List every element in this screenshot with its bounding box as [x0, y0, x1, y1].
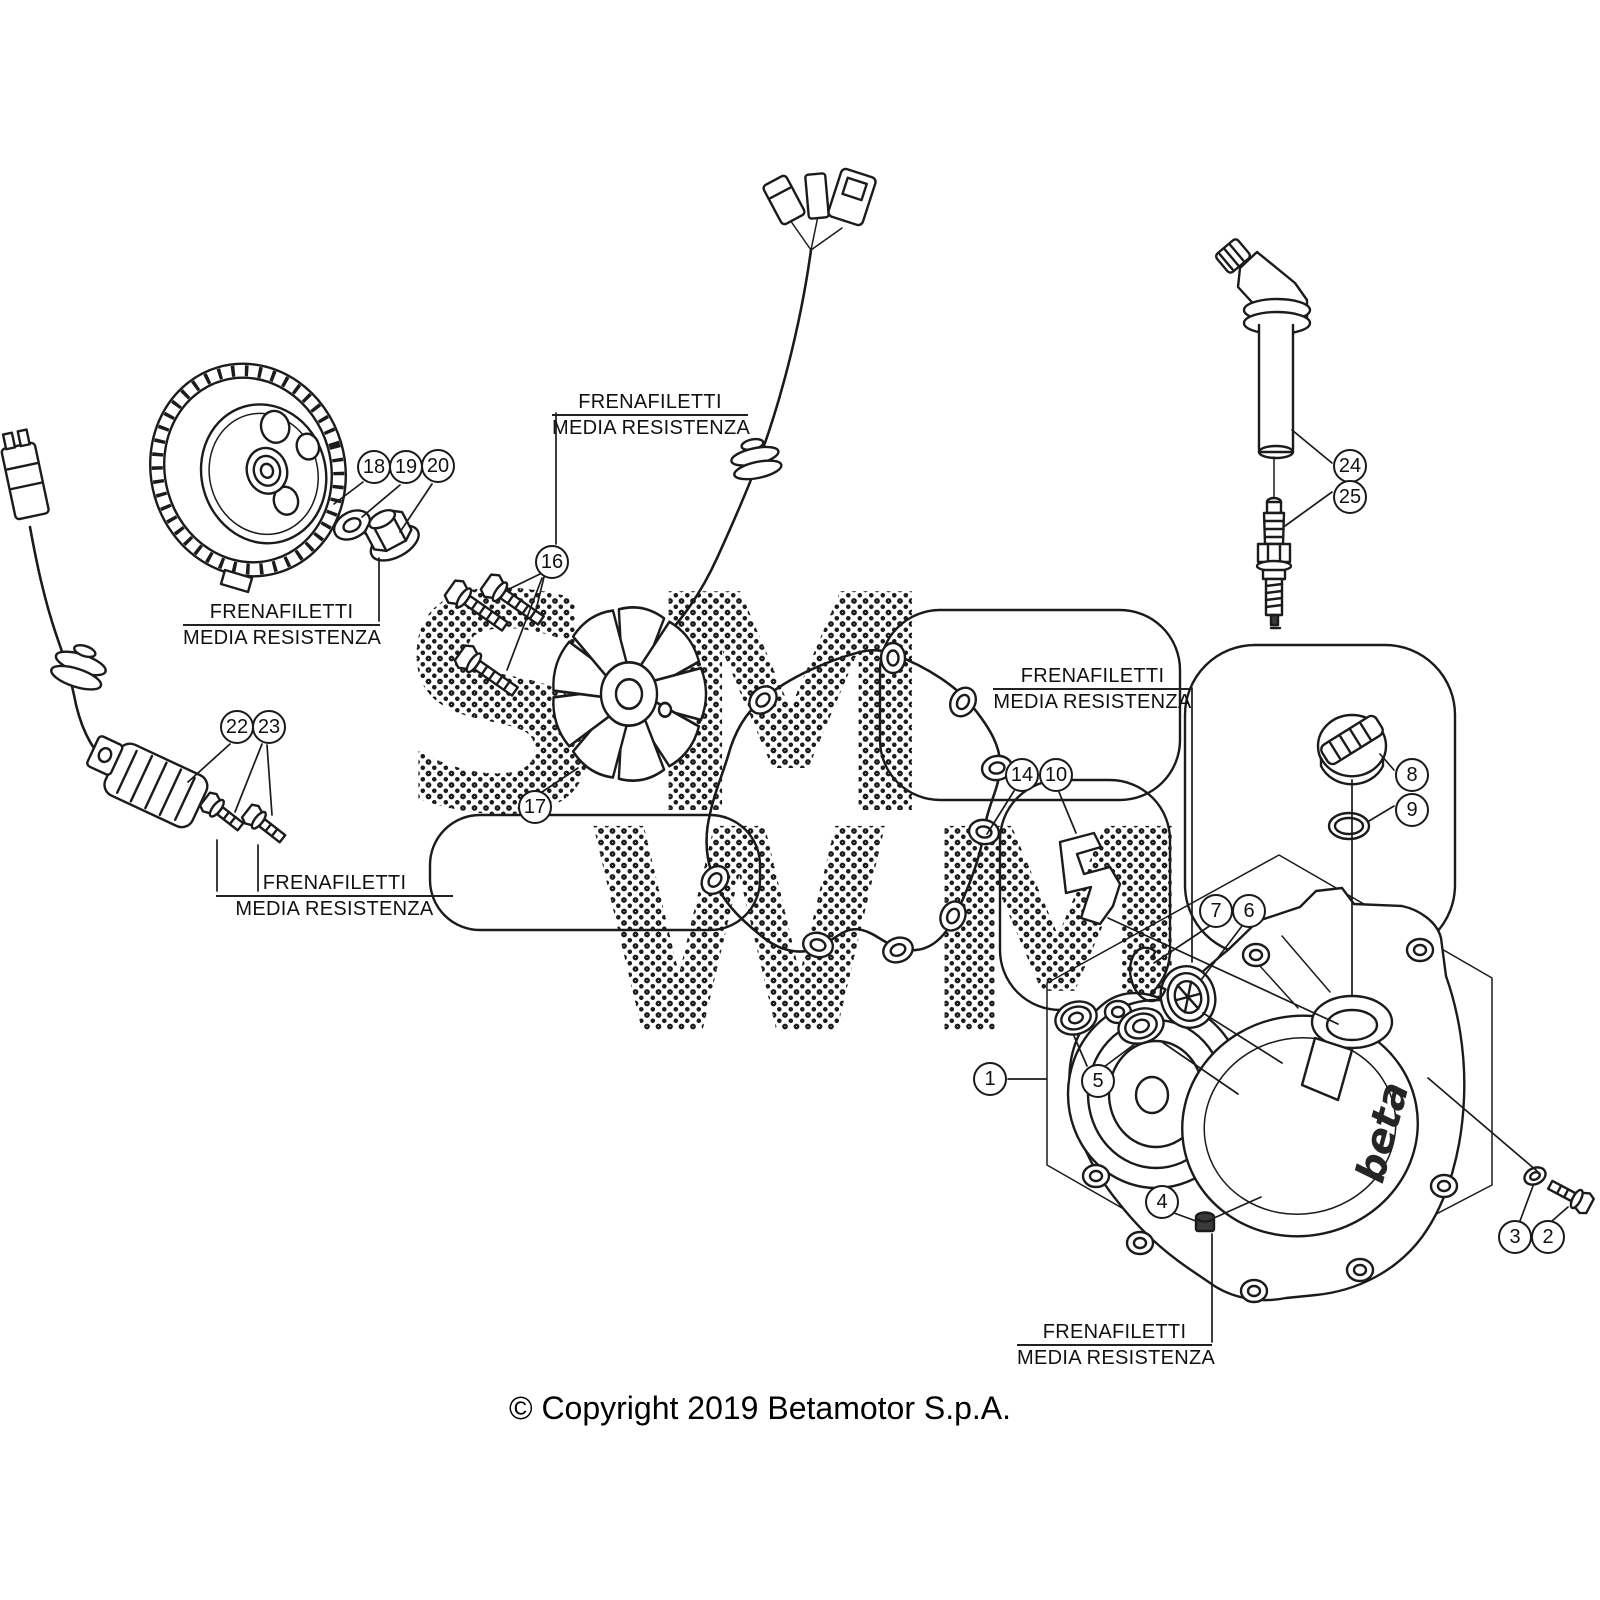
callout-16: 16 [535, 545, 569, 579]
cover-bolt [1545, 1175, 1595, 1216]
parts-diagram-page: SM WM [0, 0, 1600, 1600]
callout-22: 22 [220, 710, 254, 744]
note-frenafiletti-stator-bolts: FRENAFILETTI MEDIA RESISTENZA [552, 392, 748, 439]
callout-19: 19 [389, 450, 423, 484]
callout-18: 18 [357, 450, 391, 484]
note-frenafiletti-flywheel: FRENAFILETTI MEDIA RESISTENZA [183, 602, 380, 649]
callout-9: 9 [1395, 793, 1429, 827]
note-frenafiletti-cover: FRENAFILETTI MEDIA RESISTENZA [993, 666, 1192, 713]
callout-17: 17 [518, 790, 552, 824]
coil-mount-bolts [198, 790, 289, 847]
cover-bolt-washer [1522, 1164, 1549, 1188]
callout-25: 25 [1333, 480, 1367, 514]
callout-10: 10 [1039, 758, 1073, 792]
spark-plug [1257, 457, 1291, 628]
callout-24: 24 [1333, 449, 1367, 483]
callout-3: 3 [1498, 1220, 1532, 1254]
callout-5: 5 [1081, 1064, 1115, 1098]
note-frenafiletti-drain-plug: FRENAFILETTI MEDIA RESISTENZA [1017, 1322, 1212, 1369]
spark-plug-cap [1215, 238, 1310, 458]
callout-1: 1 [973, 1062, 1007, 1096]
oil-filler-cap [1318, 714, 1386, 785]
note-frenafiletti-coil-bolts: FRENAFILETTI MEDIA RESISTENZA [216, 873, 453, 920]
drain-plug [1196, 1213, 1214, 1232]
copyright-text: © Copyright 2019 Betamotor S.p.A. [450, 1390, 1070, 1427]
callout-14: 14 [1005, 758, 1039, 792]
callout-2: 2 [1531, 1220, 1565, 1254]
callout-20: 20 [421, 449, 455, 483]
exploded-view-drawing: SM WM [0, 0, 1600, 1600]
callout-23: 23 [252, 710, 286, 744]
callout-8: 8 [1395, 758, 1429, 792]
callout-7: 7 [1199, 894, 1233, 928]
callout-6: 6 [1232, 894, 1266, 928]
callout-4: 4 [1145, 1185, 1179, 1219]
oil-cap-o-ring [1329, 813, 1369, 839]
